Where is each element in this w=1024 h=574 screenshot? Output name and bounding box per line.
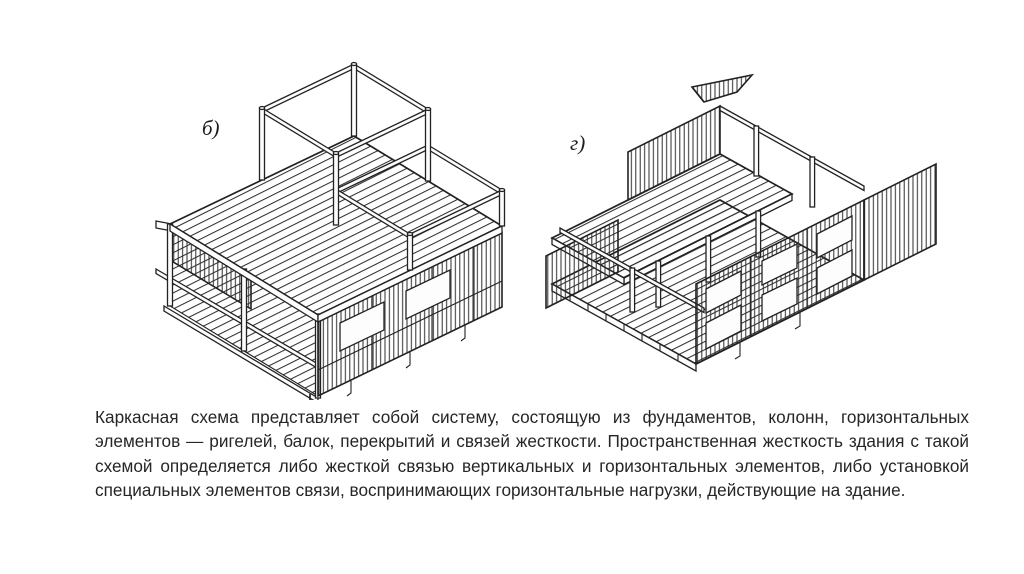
column [352,64,357,136]
beam [262,108,336,158]
column-top [351,63,356,66]
column [260,108,265,180]
figure-b-label: б) [202,116,220,141]
cropped-drawing-fragment [692,75,752,102]
figures-area: б) г) [0,0,1024,400]
column-top [259,107,264,110]
column [242,269,247,351]
construction-schemes-drawing [0,0,1024,400]
figure-panel-scheme [546,75,936,371]
column [756,211,761,257]
wall-panel [864,164,936,280]
column [630,268,635,312]
column [168,224,173,306]
column-top [425,108,430,111]
column [426,109,431,181]
column-top [407,233,412,236]
beam [354,64,428,114]
column [408,234,413,270]
beam [262,64,354,113]
column [810,157,815,207]
figure-g-label: г) [570,131,585,156]
slide-paragraph: Каркасная схема представляет собой систе… [95,405,969,503]
column-top [499,189,504,192]
figure-frame-scheme [156,63,505,401]
column-top [333,152,338,155]
slide: б) г) Каркасная схема представляет собой… [0,0,1024,574]
column [500,190,505,226]
beam [336,109,428,158]
column [754,126,759,176]
column [706,236,711,282]
column [334,153,339,225]
